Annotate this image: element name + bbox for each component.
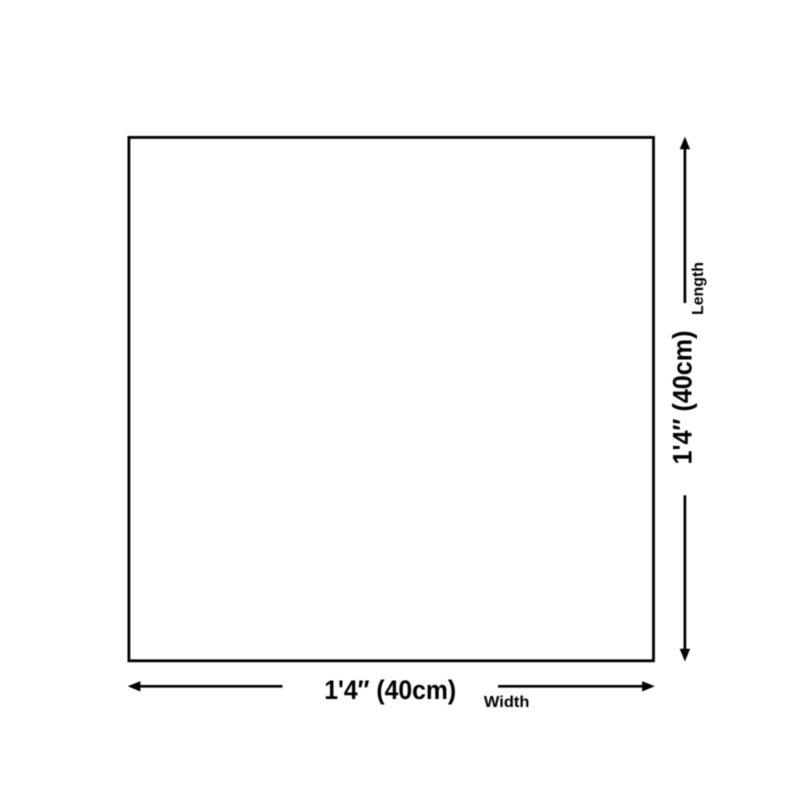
svg-text:1'4″ (40cm): 1'4″ (40cm) xyxy=(324,675,456,705)
svg-text:Length: Length xyxy=(690,262,707,315)
svg-text:Width: Width xyxy=(484,694,530,711)
svg-text:1'4″ (40cm): 1'4″ (40cm) xyxy=(667,331,697,465)
